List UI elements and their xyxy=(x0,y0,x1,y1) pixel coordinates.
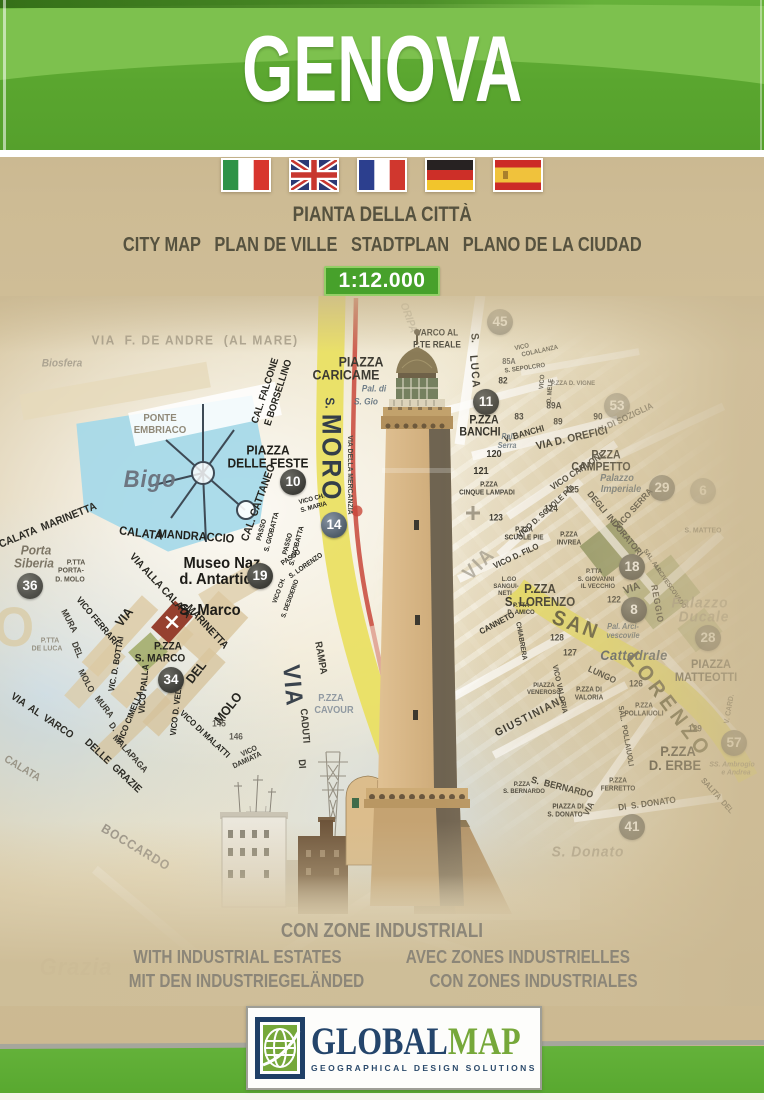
right-fold-crease xyxy=(760,0,762,157)
spain-flag-icon xyxy=(493,158,543,192)
poi-marker-57: 57 xyxy=(721,730,747,756)
bottom-scan-edge xyxy=(0,1093,764,1100)
header-band: GENOVA xyxy=(0,0,764,150)
logo-text: GLOBALMAP GEOGRAPHICAL DESIGN SOLUTIONS xyxy=(311,1023,567,1073)
left-fold-crease xyxy=(3,0,6,157)
header-separator xyxy=(0,150,764,157)
subtitle-multilingual-text: CITY MAP PLAN DE VILLE STADTPLAN PLANO D… xyxy=(123,234,642,257)
france-flag-icon xyxy=(357,158,407,192)
logo-map: MAP xyxy=(448,1020,521,1063)
germany-flag-icon xyxy=(425,158,475,192)
base-fade xyxy=(180,875,580,920)
logo-tagline: GEOGRAPHICAL DESIGN SOLUTIONS xyxy=(311,1063,567,1073)
poi-marker-8: 8 xyxy=(621,597,647,623)
poi-marker-53: 53 xyxy=(604,393,630,419)
zones-german: MIT DEN INDUSTRIEGELÄNDED xyxy=(129,971,364,992)
page-title: GENOVA xyxy=(0,22,764,116)
poi-marker-41: 41 xyxy=(619,814,645,840)
globe-grid-icon xyxy=(255,1017,305,1079)
top-fold-strip xyxy=(0,0,764,8)
industrial-zones-line3: MIT DEN INDUSTRIEGELÄNDED CON ZONES INDU… xyxy=(0,971,764,992)
poi-marker-36: 36 xyxy=(17,573,43,599)
scale-badge-wrap: 1:12.000 xyxy=(0,266,764,296)
globalmap-logo: GLOBALMAP GEOGRAPHICAL DESIGN SOLUTIONS xyxy=(246,1006,542,1090)
industrial-zones-line2: WITH INDUSTRIAL ESTATES AVEC ZONES INDUS… xyxy=(0,947,764,968)
poi-marker-29: 29 xyxy=(649,475,675,501)
city-title: GENOVA xyxy=(242,22,522,116)
lanterna-lighthouse-photo xyxy=(180,320,580,920)
zones-french: AVEC ZONES INDUSTRIELLES xyxy=(405,947,629,968)
lighthouse-tower xyxy=(364,329,470,906)
city-map-artwork: VIA F. DE ANDRE (AL MARE)BiosferaORIPAVA… xyxy=(0,296,764,1006)
language-flags-row xyxy=(0,158,764,192)
map-cover-page: GENOVA PIANTA DELLA CITTÀ CITY MAP PLAN … xyxy=(0,0,764,1100)
zones-spanish: CON ZONES INDUSTRIALES xyxy=(429,971,637,992)
logo-global: GLOBAL xyxy=(311,1020,448,1063)
zones-english: WITH INDUSTRIAL ESTATES xyxy=(133,947,341,968)
logo-wordmark: GLOBALMAP xyxy=(311,1023,521,1061)
uk-flag-icon xyxy=(289,158,339,192)
poi-marker-18: 18 xyxy=(619,554,645,580)
zones-italian: CON ZONE INDUSTRIALI xyxy=(281,920,483,943)
poi-marker-28: 28 xyxy=(695,625,721,651)
scale-badge: 1:12.000 xyxy=(324,266,441,296)
subtitle-italian: PIANTA DELLA CITTÀ xyxy=(0,203,764,227)
industrial-zones-line1: CON ZONE INDUSTRIALI xyxy=(0,920,764,943)
italy-flag-icon xyxy=(221,158,271,192)
subtitle-italian-text: PIANTA DELLA CITTÀ xyxy=(292,203,471,227)
poi-marker-6: 6 xyxy=(690,478,716,504)
subtitle-multilingual: CITY MAP PLAN DE VILLE STADTPLAN PLANO D… xyxy=(0,234,764,257)
